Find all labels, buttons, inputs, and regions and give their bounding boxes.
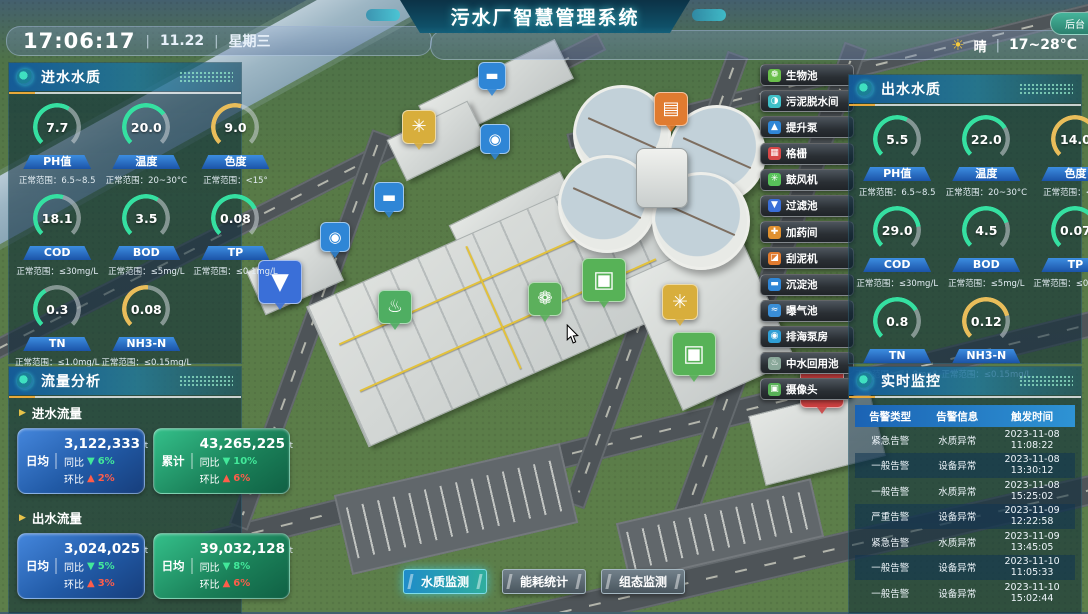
gauge-label: PH值 [23, 155, 91, 169]
facility-button-sludge-dewatering-room[interactable]: ◑污泥脱水间 [760, 90, 854, 112]
gauge-bod: 4.5BOD正常范围：≤5mg/L [941, 206, 1031, 289]
gauge-label: TP [201, 246, 269, 260]
facility-button-blower[interactable]: ✳鼓风机 [760, 169, 854, 191]
marker-pointer [330, 251, 340, 263]
divider: | [996, 38, 1000, 53]
col-alarm-type: 告警类型 [855, 409, 925, 424]
card-tag: 日均 [26, 558, 57, 574]
sludge-dewatering-icon: ◑ [768, 95, 781, 108]
gauge-label: COD [23, 246, 91, 260]
gauge-value: 0.3 [33, 285, 81, 333]
sedimentation-marker[interactable]: ▬ [374, 182, 404, 223]
gauge-bod: 3.5BOD正常范围：≤5mg/L [101, 194, 191, 277]
facility-button-filter-pool[interactable]: ▼过滤池 [760, 195, 854, 217]
panel-orb-icon [857, 81, 873, 97]
gauge-range: 正常范围：<15° [203, 174, 268, 186]
gauge-label: 温度 [952, 167, 1020, 181]
alarm-time: 2023-11-09 12:22:58 [989, 505, 1075, 527]
panel-orb-icon [857, 373, 873, 389]
gauge-range: 正常范围：6.5~8.5 [859, 186, 936, 198]
gauge-cod: 29.0COD正常范围：≤30mg/L [855, 206, 939, 289]
facility-label: 排海泵房 [786, 329, 828, 344]
gauge-value: 14.0 [1051, 115, 1088, 163]
alarm-time: 2023-11-08 11:08:22 [989, 429, 1075, 451]
filter-funnel-icon: ▼ [768, 199, 781, 212]
yoy-label: 同比 [64, 454, 84, 469]
facility-label: 污泥脱水间 [786, 94, 839, 109]
mom-value: 3% [98, 578, 115, 589]
table-row[interactable]: 严重告警设备异常2023-11-09 12:22:58 [855, 504, 1075, 530]
outlet-flow-label-row: ▶ 出水流量 [9, 500, 241, 531]
sedimentation-marker-icon: ▬ [374, 182, 404, 212]
tab-scada-monitoring[interactable]: 组态监测 [601, 569, 685, 594]
camera-marker-1-icon: ▣ [582, 258, 626, 302]
flow-card-total: 日均 39,032,128 t 同比▼8% 环比▲6% [153, 533, 290, 599]
col-alarm-info: 告警信息 [925, 409, 989, 424]
panel-header: 实时监控 [849, 367, 1081, 395]
panel-orb-icon [17, 373, 33, 389]
mom-value: 6% [233, 578, 250, 589]
gauge-label: NH3-N [952, 349, 1020, 363]
bio-pool-marker[interactable]: ❁ [528, 282, 562, 327]
blower-marker-2[interactable]: ✳ [662, 284, 698, 331]
gauge-value: 0.07 [1051, 206, 1088, 254]
blower-marker-1-icon: ✳ [402, 110, 436, 144]
reuse-pool-marker[interactable]: ♨ [378, 290, 412, 335]
card-tag: 日均 [26, 453, 57, 469]
marker-pointer [390, 323, 400, 335]
flow-unit: t [290, 441, 293, 451]
card-tag: 日均 [162, 558, 193, 574]
gauge-ph: 5.5PH值正常范围：6.5~8.5 [855, 115, 939, 198]
arrow-down-icon: ▼ [87, 561, 95, 572]
marker-pointer [384, 211, 394, 223]
dosing-room-marker[interactable]: ▤ [654, 92, 688, 137]
bio-pool-icon: ❁ [768, 69, 781, 82]
pump-marker-icon: ◉ [320, 222, 350, 252]
gauge-label: COD [863, 258, 931, 272]
arrow-up-icon: ▲ [223, 473, 231, 484]
alarm-time: 2023-11-08 15:25:02 [989, 480, 1075, 502]
marker-pointer [487, 89, 497, 101]
arrow-down-icon: ▼ [87, 456, 95, 467]
bar-screen-icon: ▦ [768, 147, 781, 160]
facility-label: 曝气池 [786, 303, 818, 318]
weather-condition: 晴 [974, 36, 987, 55]
gauge-range: 正常范围：≤0.1mg/L [193, 265, 277, 277]
gauge-value: 3.5 [122, 194, 170, 242]
gauge-label: PH值 [863, 167, 931, 181]
marker-pointer [414, 143, 424, 155]
panel-header: 出水水质 [849, 75, 1081, 103]
tab-energy-statistics[interactable]: 能耗统计 [502, 569, 586, 594]
panel-orb-icon [17, 69, 33, 85]
alarm-table: 告警类型 告警信息 触发时间 紧急告警水质异常2023-11-08 11:08:… [855, 405, 1075, 606]
flow-value: 43,265,225 [200, 436, 285, 452]
facility-label: 生物池 [786, 68, 818, 83]
marker-pointer [675, 319, 685, 331]
gauge-range: 正常范围：≤5mg/L [108, 265, 184, 277]
inlet-flow-cards: 日均 3,122,333 t 同比▼6% 环比▲2% 累计 43,265,225… [9, 426, 241, 500]
mom-label: 环比 [64, 576, 84, 591]
gauge-chroma: 9.0色度正常范围：<15° [193, 103, 277, 186]
gauge-label: TP [1041, 258, 1088, 272]
outlet-flow-label: 出水流量 [32, 508, 82, 527]
yoy-value: 8% [233, 561, 250, 572]
flow-analysis-panel: 流量分析 ▶ 进水流量 日均 3,122,333 t 同比▼6% 环比▲2% 累… [8, 366, 242, 614]
table-row[interactable]: 一般告警设备异常2023-11-10 11:05:33 [855, 555, 1075, 581]
alarm-info: 设备异常 [925, 458, 989, 472]
header-decor [366, 9, 400, 21]
inlet-flow-label-row: ▶ 进水流量 [9, 395, 241, 426]
gauge-label: 色度 [201, 155, 269, 169]
gauge-value: 18.1 [33, 194, 81, 242]
alarm-type: 一般告警 [855, 484, 925, 498]
clock-weekday: 星期三 [229, 31, 271, 51]
gauge-grid: 5.5PH值正常范围：6.5~8.5 22.0温度正常范围：20~30°C 14… [849, 103, 1081, 388]
dot-pattern-decor [1019, 83, 1073, 95]
alarm-info: 设备异常 [925, 560, 989, 574]
gauge-range: 正常范围：≤0.1mg/L [1033, 277, 1088, 289]
facility-label: 刮泥机 [786, 251, 818, 266]
alarm-time: 2023-11-09 13:45:05 [989, 531, 1075, 553]
alarm-type: 紧急告警 [855, 433, 925, 447]
gauge-grid: 7.7PH值正常范围：6.5~8.5 20.0温度正常范围：20~30°C 9.… [9, 91, 241, 376]
gauge-cod: 18.1COD正常范围：≤30mg/L [15, 194, 99, 277]
outlet-quality-panel: 出水水质 5.5PH值正常范围：6.5~8.5 22.0温度正常范围：20~30… [848, 74, 1082, 364]
realtime-monitor-panel: 实时监控 告警类型 告警信息 触发时间 紧急告警水质异常2023-11-08 1… [848, 366, 1082, 614]
header-decor [692, 9, 726, 21]
blower-marker-2-icon: ✳ [662, 284, 698, 320]
table-row[interactable]: 一般告警水质异常2023-11-08 15:25:02 [855, 478, 1075, 504]
facility-button-lift-pump[interactable]: ▲提升泵 [760, 116, 854, 138]
alarm-info: 设备异常 [925, 586, 989, 600]
camera-marker-2-icon: ▣ [672, 332, 716, 376]
inlet-flow-label: 进水流量 [32, 403, 82, 422]
gauge-label: NH3-N [112, 337, 180, 351]
col-trigger-time: 触发时间 [989, 409, 1075, 424]
panel-header: 流量分析 [9, 367, 241, 395]
blower-marker-1[interactable]: ✳ [402, 110, 436, 155]
outlet-flow-cards: 日均 3,024,025 t 同比▼5% 环比▲3% 日均 39,032,128… [9, 531, 241, 605]
alarm-type: 一般告警 [855, 458, 925, 472]
panel-header: 进水水质 [9, 63, 241, 91]
facility-button-mud-scraper[interactable]: ◪刮泥机 [760, 247, 854, 269]
gauge-label: 温度 [112, 155, 180, 169]
facility-label: 格栅 [786, 146, 807, 161]
yoy-value: 5% [98, 561, 115, 572]
gauge-value: 9.0 [211, 103, 259, 151]
gauge-nh3n: 0.08NH3-N正常范围：≤0.15mg/L [101, 285, 191, 368]
marker-pointer [275, 303, 285, 315]
alarm-time: 2023-11-08 13:30:12 [989, 454, 1075, 476]
dosing-icon: ✚ [768, 226, 781, 239]
flow-unit: t [145, 441, 148, 451]
facility-button-list: ❁生物池 ◑污泥脱水间 ▲提升泵 ▦格栅 ✳鼓风机 ▼过滤池 ✚加药间 ◪刮泥机… [760, 64, 854, 400]
alarm-info: 水质异常 [925, 484, 989, 498]
gauge-value: 0.12 [962, 297, 1010, 345]
facility-button-reclaimed-water-pool[interactable]: ♨中水回用池 [760, 352, 854, 374]
marker-pointer [490, 153, 500, 165]
arrow-down-icon: ▼ [223, 456, 231, 467]
reclaimed-water-icon: ♨ [768, 357, 781, 370]
gauge-temperature: 20.0温度正常范围：20~30°C [101, 103, 191, 186]
dot-pattern-decor [179, 71, 233, 83]
weather-bar: ☀ 晴 | 17~28°C [430, 30, 1088, 60]
page-title: 污水厂智慧管理系统 [450, 3, 639, 30]
inlet-quality-panel: 进水水质 7.7PH值正常范围：6.5~8.5 20.0温度正常范围：20~30… [8, 62, 242, 364]
camera-marker-1[interactable]: ▣ [582, 258, 626, 313]
flow-unit: t [145, 546, 148, 556]
gauge-value: 5.5 [873, 115, 921, 163]
flow-value: 39,032,128 [200, 541, 285, 557]
gauge-range: 正常范围：<15° [1043, 186, 1088, 198]
flow-value: 3,122,333 [64, 436, 140, 452]
alarm-time: 2023-11-10 15:02:44 [989, 582, 1075, 604]
gauge-ph: 7.7PH值正常范围：6.5~8.5 [15, 103, 99, 186]
alarm-type: 紧急告警 [855, 535, 925, 549]
gauge-tp: 0.07TP正常范围：≤0.1mg/L [1033, 206, 1088, 289]
alarm-type: 严重告警 [855, 509, 925, 523]
gauge-label: 色度 [1041, 167, 1088, 181]
gauge-value: 20.0 [122, 103, 170, 151]
divider: | [145, 34, 149, 49]
mouse-cursor [566, 324, 579, 344]
pump-marker[interactable]: ◉ [320, 222, 350, 263]
facility-button-aeration-pool[interactable]: ≈曝气池 [760, 300, 854, 322]
lift-pump-icon: ▲ [768, 121, 781, 134]
facility-label: 过滤池 [786, 198, 818, 213]
facility-button-bar-screen[interactable]: ▦格栅 [760, 143, 854, 165]
gauge-value: 4.5 [962, 206, 1010, 254]
gauge-range: 正常范围：≤30mg/L [856, 277, 938, 289]
gauge-value: 7.7 [33, 103, 81, 151]
panel-title: 进水水质 [41, 67, 171, 87]
yoy-value: 10% [233, 456, 257, 467]
mud-scraper-icon: ◪ [768, 252, 781, 265]
alarm-info: 设备异常 [925, 509, 989, 523]
gauge-tp: 0.08TP正常范围：≤0.1mg/L [193, 194, 277, 277]
yoy-label: 同比 [200, 454, 220, 469]
mom-label: 环比 [200, 576, 220, 591]
gauge-range: 正常范围：20~30°C [106, 174, 187, 186]
yoy-value: 6% [98, 456, 115, 467]
arrow-down-icon: ▼ [223, 561, 231, 572]
marker-pointer [817, 407, 827, 419]
gauge-value: 22.0 [962, 115, 1010, 163]
sea-pump-icon: ◉ [768, 330, 781, 343]
camera-marker-2[interactable]: ▣ [672, 332, 716, 387]
arrow-up-icon: ▲ [87, 578, 95, 589]
panel-title: 出水水质 [881, 79, 1011, 99]
alarm-type: 一般告警 [855, 586, 925, 600]
table-row[interactable]: 一般告警设备异常2023-11-08 13:30:12 [855, 453, 1075, 479]
gauge-tn: 0.3TN正常范围：≤1.0mg/L [15, 285, 99, 368]
dot-pattern-decor [179, 375, 233, 387]
yoy-label: 同比 [64, 559, 84, 574]
gauge-value: 0.8 [873, 297, 921, 345]
facility-label: 沉淀池 [786, 277, 818, 292]
tab-water-quality-monitoring[interactable]: 水质监测 [403, 569, 487, 594]
flow-unit: t [290, 546, 293, 556]
facility-label: 提升泵 [786, 120, 818, 135]
facility-button-bio-pool[interactable]: ❁生物池 [760, 64, 854, 86]
sludge-building-marker[interactable]: ▬ [478, 62, 506, 101]
sun-icon: ☀ [951, 36, 964, 54]
gauge-label: TN [863, 349, 931, 363]
yoy-label: 同比 [200, 559, 220, 574]
alarm-info: 水质异常 [925, 433, 989, 447]
lift-pump-marker[interactable]: ◉ [480, 124, 510, 165]
gauge-value: 0.08 [211, 194, 259, 242]
flow-value: 3,024,025 [64, 541, 140, 557]
alarm-type: 一般告警 [855, 560, 925, 574]
flow-card-daily: 日均 3,122,333 t 同比▼6% 环比▲2% [17, 428, 145, 494]
arrow-up-icon: ▲ [87, 473, 95, 484]
gauge-range: 正常范围：≤5mg/L [948, 277, 1024, 289]
bio-pool-marker-icon: ❁ [528, 282, 562, 316]
gauge-range: 正常范围：20~30°C [946, 186, 1027, 198]
blower-fan-icon: ✳ [768, 173, 781, 186]
table-row[interactable]: 紧急告警水质异常2023-11-08 11:08:22 [855, 427, 1075, 453]
aeration-icon: ≈ [768, 304, 781, 317]
panel-title: 流量分析 [41, 371, 171, 391]
sedimentation-icon: ▬ [768, 278, 781, 291]
lift-pump-marker-icon: ◉ [480, 124, 510, 154]
mom-value: 2% [98, 473, 115, 484]
clock-date: 11.22 [160, 33, 204, 49]
bottom-tab-bar: 水质监测 能耗统计 组态监测 [403, 569, 685, 594]
clock-bar: 17:06:17 | 11.22 | 星期三 [6, 26, 432, 56]
triangle-bullet-icon: ▶ [19, 408, 26, 418]
triangle-bullet-icon: ▶ [19, 513, 26, 523]
facility-button-sea-discharge-pump-house[interactable]: ◉排海泵房 [760, 326, 854, 348]
gauge-range: 正常范围：≤30mg/L [16, 265, 98, 277]
sludge-building-marker-icon: ▬ [478, 62, 506, 90]
gauge-value: 29.0 [873, 206, 921, 254]
panel-title: 实时监控 [881, 371, 1011, 391]
alarm-info: 水质异常 [925, 535, 989, 549]
mom-label: 环比 [64, 471, 84, 486]
facility-label: 鼓风机 [786, 172, 818, 187]
alarm-table-header: 告警类型 告警信息 触发时间 [855, 405, 1075, 427]
table-row[interactable]: 紧急告警水质异常2023-11-09 13:45:05 [855, 529, 1075, 555]
gauge-temperature: 22.0温度正常范围：20~30°C [941, 115, 1031, 198]
arrow-up-icon: ▲ [223, 578, 231, 589]
temperature-range: 17~28°C [1009, 37, 1077, 53]
marker-pointer [599, 301, 609, 313]
flow-card-daily: 日均 3,024,025 t 同比▼5% 环比▲3% [17, 533, 145, 599]
dot-pattern-decor [1019, 375, 1073, 387]
clock-time: 17:06:17 [23, 29, 135, 53]
gauge-value: 0.08 [122, 285, 170, 333]
reuse-pool-marker-icon: ♨ [378, 290, 412, 324]
facility-button-camera[interactable]: ▣摄像头 [760, 378, 854, 400]
mom-value: 6% [233, 473, 250, 484]
gauge-label: BOD [952, 258, 1020, 272]
divider: | [214, 34, 218, 49]
facility-label: 中水回用池 [786, 356, 839, 371]
facility-button-dosing-room[interactable]: ✚加药间 [760, 221, 854, 243]
camera-icon: ▣ [768, 383, 781, 396]
marker-pointer [666, 125, 676, 137]
facility-button-sedimentation-pool[interactable]: ▬沉淀池 [760, 274, 854, 296]
backend-button[interactable]: 后台 [1050, 12, 1088, 35]
mom-label: 环比 [200, 471, 220, 486]
facility-label: 加药间 [786, 225, 818, 240]
gauge-label: TN [23, 337, 91, 351]
dosing-room-marker-icon: ▤ [654, 92, 688, 126]
flow-card-total: 累计 43,265,225 t 同比▼10% 环比▲6% [153, 428, 290, 494]
facility-label: 摄像头 [786, 382, 818, 397]
gauge-range: 正常范围：6.5~8.5 [19, 174, 96, 186]
marker-pointer [540, 315, 550, 327]
card-tag: 累计 [162, 453, 193, 469]
alarm-time: 2023-11-10 11:05:33 [989, 556, 1075, 578]
table-row[interactable]: 一般告警设备异常2023-11-10 15:02:44 [855, 580, 1075, 606]
gauge-chroma: 14.0色度正常范围：<15° [1033, 115, 1088, 198]
marker-pointer [689, 375, 699, 387]
app-title-bar: 污水厂智慧管理系统 [400, 0, 690, 33]
gauge-label: BOD [112, 246, 180, 260]
